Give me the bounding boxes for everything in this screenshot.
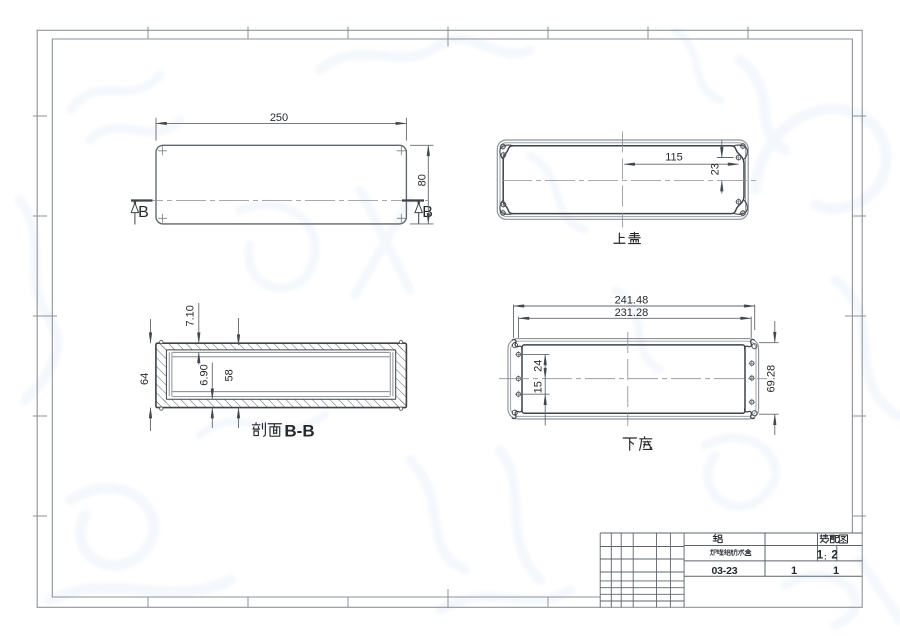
svg-text:B: B bbox=[138, 204, 149, 221]
svg-text:64: 64 bbox=[139, 373, 151, 385]
svg-text:1: 1 bbox=[817, 550, 824, 562]
svg-text:23: 23 bbox=[710, 163, 722, 175]
svg-text::: : bbox=[824, 553, 827, 562]
svg-text:B-B: B-B bbox=[284, 422, 314, 441]
svg-text:69.28: 69.28 bbox=[765, 365, 777, 393]
svg-text:7.10: 7.10 bbox=[184, 305, 196, 326]
svg-text:250: 250 bbox=[270, 112, 288, 124]
svg-text:58: 58 bbox=[223, 369, 235, 381]
svg-text:03-23: 03-23 bbox=[712, 565, 738, 577]
svg-text:1: 1 bbox=[791, 565, 797, 577]
svg-text:24: 24 bbox=[533, 360, 545, 372]
svg-text:1: 1 bbox=[833, 565, 839, 577]
svg-text:2: 2 bbox=[831, 550, 837, 562]
svg-text:231.28: 231.28 bbox=[615, 307, 649, 319]
svg-text:6.90: 6.90 bbox=[199, 364, 211, 385]
svg-text:241.48: 241.48 bbox=[615, 294, 649, 306]
svg-text:115: 115 bbox=[665, 151, 683, 163]
svg-text:15: 15 bbox=[533, 381, 545, 393]
svg-text:80: 80 bbox=[417, 174, 429, 186]
